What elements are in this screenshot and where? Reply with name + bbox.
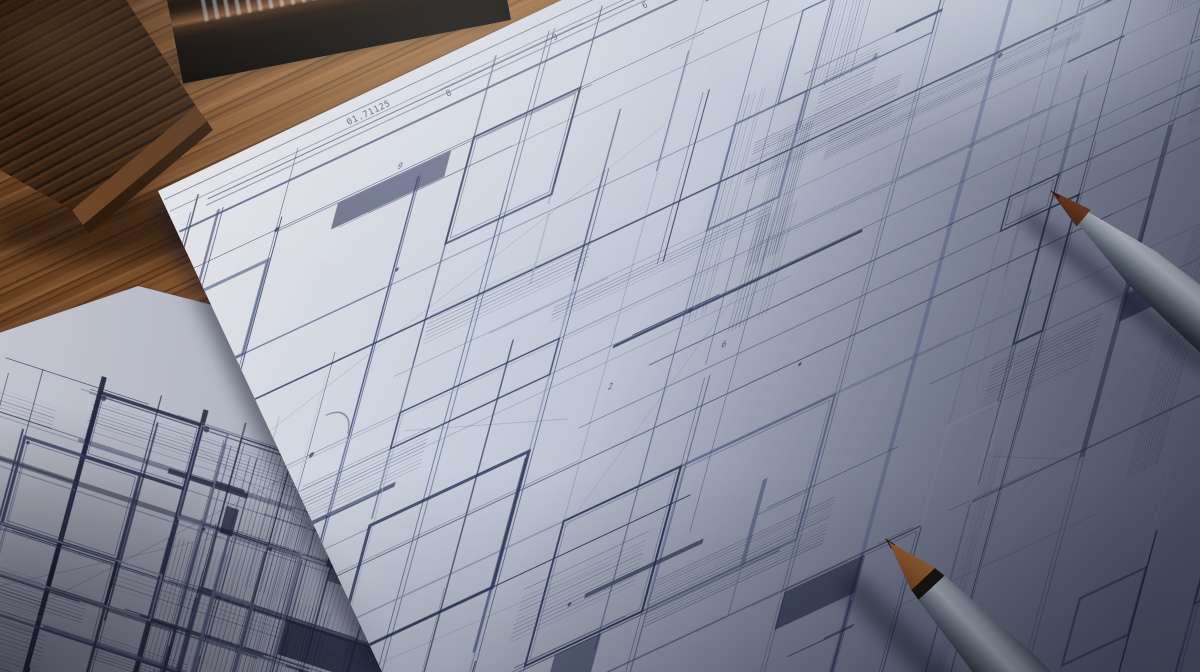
svg-text:6: 6 [720, 339, 728, 351]
margin-digit: 8 [445, 88, 454, 99]
margin-digit: 6 [641, 0, 650, 11]
margin-digit: 9 [551, 32, 560, 43]
svg-text:2: 2 [607, 381, 615, 393]
photo-architectural-blueprint-desk: 842963 01.71125 8 9 6 2 [0, 0, 1200, 672]
